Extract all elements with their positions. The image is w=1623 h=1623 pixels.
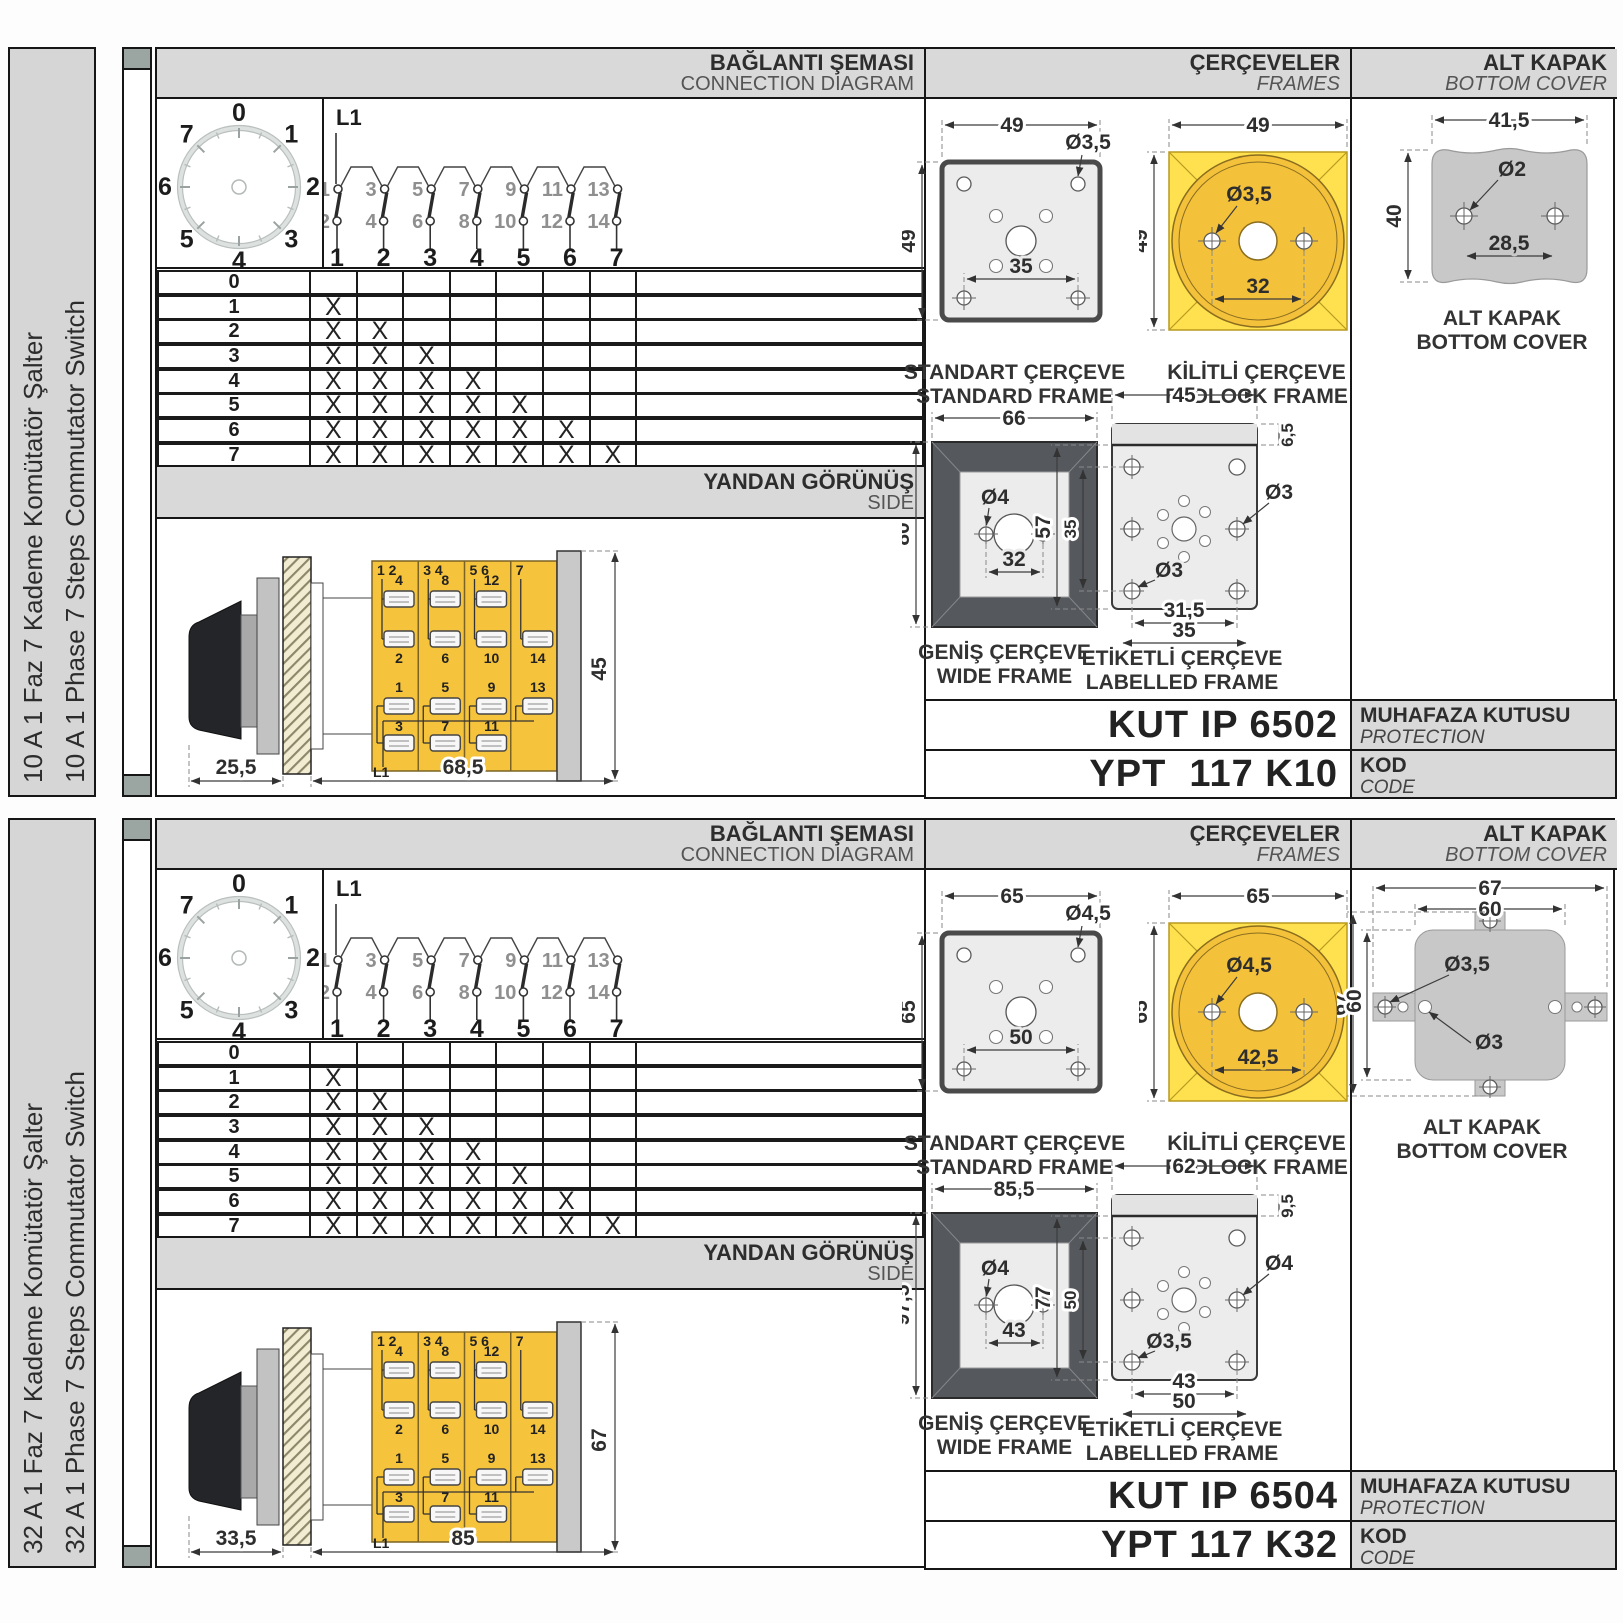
row-label: 0	[159, 1043, 311, 1064]
mounting-panel	[283, 1328, 311, 1545]
code-label-en: CODE	[1360, 1548, 1607, 1569]
step-cell: X	[311, 445, 358, 466]
side-band-tr: YANDAN GÖRÜNÜŞ	[157, 1241, 914, 1264]
top-contact-label: 9	[505, 179, 516, 201]
terminal-label: 14	[530, 1421, 546, 1437]
terminal-label: 8	[441, 1343, 449, 1359]
code-label-cell: KOD CODE	[1350, 749, 1617, 799]
step-cell	[358, 1043, 405, 1064]
pair-label: 7	[516, 1333, 524, 1349]
table-row: 6XXXXXX	[157, 1189, 924, 1214]
step-cell	[544, 1117, 591, 1138]
step-cell: X	[358, 1216, 405, 1237]
dim-front-label: 33,5	[216, 1527, 257, 1550]
step-cell: X	[404, 395, 451, 416]
spacer-plate	[311, 583, 323, 749]
panel-title-turkish: 10 A 1 Faz 7 Kademe Komütatör Şalter	[18, 332, 49, 783]
sidebar-10a: 10 A 1 Faz 7 Kademe Komütatör Şalter 10 …	[8, 47, 96, 797]
header-cover-tr: ALT KAPAK	[1350, 51, 1607, 74]
code-label-cell: KOD CODE	[1350, 1520, 1617, 1570]
step-cell: X	[311, 1191, 358, 1212]
step-cell	[544, 297, 591, 318]
step-number: 5	[516, 244, 530, 267]
labelled-frame-label: ETİKETLİ ÇERÇEVE LABELLED FRAME	[1017, 647, 1347, 695]
row-label: 6	[159, 1191, 311, 1212]
cover-height-label: 40	[1383, 204, 1406, 227]
bottom-contact-label: 8	[459, 982, 470, 1004]
product-code-text: YPT 117 K32	[1101, 1524, 1338, 1567]
step-cell: X	[358, 420, 405, 441]
step-cell: X	[404, 420, 451, 441]
step-cell: X	[404, 1191, 451, 1212]
step-cell: X	[497, 420, 544, 441]
step-cell	[544, 371, 591, 392]
step-cell	[497, 1117, 544, 1138]
bottom-contact-label: 12	[541, 982, 563, 1004]
side-view-band: YANDAN GÖRÜNÜŞ SIDE	[157, 1236, 924, 1290]
row-label: 3	[159, 1117, 311, 1138]
datasheet-page: 10 A 1 Faz 7 Kademe Komütatör Şalter 10 …	[0, 0, 1623, 1623]
header-frames-tr: ÇERÇEVELER	[924, 822, 1340, 845]
labelled-frame-drawing: 45 6,5 Ø3 Ø3	[1017, 379, 1347, 649]
code-label-en: CODE	[1360, 777, 1607, 798]
position-dial: 01234567	[157, 868, 322, 1038]
bottom-contact-label: 2	[324, 982, 330, 1004]
step-cell: X	[311, 371, 358, 392]
step-number: 4	[470, 1015, 484, 1038]
step-cell: X	[497, 1216, 544, 1237]
pair-label: 3 4	[423, 562, 443, 578]
step-cell	[544, 321, 591, 342]
step-cell	[591, 1166, 638, 1187]
product-code-text: YPT 117 K10	[1089, 753, 1338, 796]
step-cell: X	[404, 1142, 451, 1163]
terminal-label: 5	[441, 1450, 449, 1466]
labelled-inner-height-label: 50	[1061, 1291, 1080, 1310]
terminal-label: 1	[395, 679, 403, 695]
terminal-label: 4	[395, 1343, 403, 1359]
padlock-width-label: 65	[1246, 885, 1270, 908]
top-contact-label: 5	[412, 179, 423, 201]
step-cell: X	[311, 420, 358, 441]
step-cell	[358, 1068, 405, 1089]
top-contact-label: 5	[412, 950, 423, 972]
product-code: YPT 117 K10	[924, 749, 1352, 799]
dial-position: 5	[180, 996, 194, 1024]
step-cell	[591, 321, 638, 342]
table-row: 4XXXX	[157, 369, 924, 394]
row-label: 7	[159, 445, 311, 466]
divider-table-top	[157, 267, 926, 269]
std-width-label: 49	[1000, 114, 1023, 137]
step-cell	[497, 1142, 544, 1163]
dial-position: 1	[284, 892, 298, 920]
labelled-width-label: 62	[1172, 1155, 1195, 1178]
terminal-label: 10	[484, 1421, 500, 1437]
std-width-label: 65	[1000, 885, 1024, 908]
enclosure-label-cell: MUHAFAZA KUTUSU PROTECTION ENCLOSURE	[1350, 699, 1617, 751]
labelled-frame-label-tr: ETİKETLİ ÇERÇEVE	[1017, 647, 1347, 671]
pair-label: 3 4	[423, 1333, 443, 1349]
labelled-band-label: 9,5	[1278, 1194, 1297, 1218]
enclosure-label-cell: MUHAFAZA KUTUSU PROTECTION ENCLOSURE	[1350, 1470, 1617, 1522]
bottom-contact-label: 14	[587, 211, 610, 233]
terminal-label: 1	[395, 1450, 403, 1466]
step-cell	[451, 346, 498, 367]
labelled-height-label: 77	[1032, 1286, 1055, 1309]
cover-hole-label: Ø2	[1498, 158, 1526, 181]
header-frames: ÇERÇEVELER FRAMES	[924, 49, 1350, 97]
enclosure-label-tr: MUHAFAZA KUTUSU	[1360, 1475, 1607, 1498]
step-cell: X	[358, 395, 405, 416]
section-header-band: BAĞLANTI ŞEMASI CONNECTION DIAGRAM ÇERÇE…	[157, 820, 1617, 868]
terminal-label: 10	[484, 650, 500, 666]
header-frames-tr: ÇERÇEVELER	[924, 51, 1340, 74]
step-cell	[451, 1043, 498, 1064]
dial-position: 2	[306, 944, 320, 972]
dial-position: 1	[284, 121, 298, 149]
step-number: 3	[423, 1015, 437, 1038]
front-bracket	[257, 578, 279, 754]
spine-square-bottom	[124, 1545, 150, 1566]
step-cell	[497, 297, 544, 318]
top-contact-label: 1	[324, 950, 330, 972]
row-label: 4	[159, 371, 311, 392]
dial-position: 4	[232, 247, 246, 267]
header-cover-tr: ALT KAPAK	[1350, 822, 1607, 845]
table-row: 7XXXXXXX	[157, 443, 924, 468]
row-label: 0	[159, 272, 311, 293]
handle-step	[241, 1386, 257, 1498]
step-cell: X	[544, 445, 591, 466]
step-cell	[404, 297, 451, 318]
side-line-label: L1	[373, 1535, 390, 1551]
header-connection: BAĞLANTI ŞEMASI CONNECTION DIAGRAM	[157, 49, 924, 97]
pair-label: 1 2	[377, 1333, 397, 1349]
std-hole-label: Ø4,5	[1065, 902, 1111, 925]
labelled-frame-label-en: LABELLED FRAME	[1017, 671, 1347, 695]
header-cover: ALT KAPAK BOTTOM COVER	[1350, 49, 1617, 97]
row-label: 5	[159, 395, 311, 416]
step-cell: X	[358, 1117, 405, 1138]
step-cell	[404, 1092, 451, 1113]
side-band-en: SIDE	[157, 1264, 914, 1285]
dial-position: 3	[284, 225, 298, 253]
step-cell	[544, 1068, 591, 1089]
step-cell: X	[311, 395, 358, 416]
step-cell: X	[311, 1166, 358, 1187]
step-cell	[451, 272, 498, 293]
step-cell: X	[311, 321, 358, 342]
spine-square-top	[124, 49, 150, 70]
bottom-cover-label-tr: ALT KAPAK	[1337, 1116, 1623, 1140]
step-cell	[591, 395, 638, 416]
code-label-tr: KOD	[1360, 754, 1607, 777]
header-connection: BAĞLANTI ŞEMASI CONNECTION DIAGRAM	[157, 820, 924, 868]
step-cell	[591, 297, 638, 318]
end-cap	[557, 1322, 581, 1552]
labelled-inner-height-label: 35	[1061, 520, 1080, 539]
step-cell: X	[358, 445, 405, 466]
table-row: 6XXXXXX	[157, 418, 924, 443]
row-label: 7	[159, 1216, 311, 1237]
side-view-drawing: L11 242133 486575 6121091171413 45 25,5 …	[187, 521, 847, 796]
step-cell: X	[404, 1166, 451, 1187]
step-cell: X	[311, 346, 358, 367]
bottom-contact-label: 8	[459, 211, 470, 233]
step-number: 1	[330, 1015, 344, 1038]
step-cell	[591, 371, 638, 392]
enclosure-label-tr: MUHAFAZA KUTUSU	[1360, 704, 1607, 727]
enclosure-code-text: KUT IP 6502	[1108, 704, 1338, 747]
labelled-band-label: 6,5	[1278, 423, 1297, 447]
labelled-frame-label-tr: ETİKETLİ ÇERÇEVE	[1017, 1418, 1347, 1442]
header-connection-tr: BAĞLANTI ŞEMASI	[157, 51, 914, 74]
step-number: 6	[563, 244, 577, 267]
dial-position: 2	[306, 173, 320, 201]
padlock-hole-label: Ø4,5	[1226, 954, 1272, 977]
step-cell	[497, 272, 544, 293]
labelled-frame-label-en: LABELLED FRAME	[1017, 1442, 1347, 1466]
step-cell: X	[358, 321, 405, 342]
step-number: 7	[610, 1015, 624, 1038]
labelled-hole-bottom-label: Ø3,5	[1146, 1330, 1192, 1353]
padlock-pitch-label: 42,5	[1238, 1046, 1279, 1069]
padlock-frame-drawing: 49 Ø3,5 32 49	[1139, 107, 1374, 357]
step-cell	[311, 272, 358, 293]
step-number: 7	[610, 244, 624, 267]
bottom-contact-label: 10	[494, 211, 516, 233]
dial-position: 3	[284, 996, 298, 1024]
wide-height-label: 80	[902, 522, 914, 545]
table-row: 4XXXX	[157, 1140, 924, 1165]
step-cell	[404, 1043, 451, 1064]
bottom-contact-label: 10	[494, 982, 516, 1004]
step-number: 6	[563, 1015, 577, 1038]
step-cell	[358, 272, 405, 293]
position-dial: 01234567	[157, 97, 322, 267]
step-cell: X	[451, 371, 498, 392]
step-cell: X	[311, 1117, 358, 1138]
step-cell	[544, 272, 591, 293]
step-cell	[451, 1068, 498, 1089]
line-label: L1	[336, 105, 362, 130]
table-row: 0	[157, 1041, 924, 1066]
cover-body-hole-label: Ø3	[1475, 1031, 1503, 1054]
enclosure-code-text: KUT IP 6504	[1108, 1475, 1338, 1518]
step-cell: X	[358, 1191, 405, 1212]
pair-label: 1 2	[377, 562, 397, 578]
step-cell: X	[311, 1068, 358, 1089]
row-label: 1	[159, 297, 311, 318]
terminal-label: 12	[484, 572, 500, 588]
std-hole-label: Ø3,5	[1065, 131, 1111, 154]
terminal-label: 11	[484, 1489, 499, 1505]
cover-inner-height-label: 60	[1343, 989, 1366, 1012]
terminal-label: 12	[484, 1343, 500, 1359]
step-cell: X	[358, 1092, 405, 1113]
wide-hole-label: Ø4	[981, 1257, 1009, 1280]
code-label-tr: KOD	[1360, 1525, 1607, 1548]
panel-main-10a: BAĞLANTI ŞEMASI CONNECTION DIAGRAM ÇERÇE…	[155, 47, 1615, 797]
padlock-width-label: 49	[1246, 114, 1269, 137]
shaft-housing	[323, 1369, 372, 1505]
step-cell	[497, 321, 544, 342]
cover-tab-hole-label: Ø3,5	[1444, 953, 1490, 976]
front-bracket	[257, 1349, 279, 1525]
table-row: 2XX	[157, 1090, 924, 1115]
bottom-contact-label: 4	[365, 982, 377, 1004]
step-number: 2	[377, 1015, 391, 1038]
dial-position: 6	[158, 944, 172, 972]
step-cell	[451, 1117, 498, 1138]
bottom-cover-label-en: BOTTOM COVER	[1382, 331, 1622, 355]
bottom-cover-label-tr: ALT KAPAK	[1382, 307, 1622, 331]
step-cell: X	[591, 445, 638, 466]
top-contact-label: 7	[459, 950, 470, 972]
header-connection-tr: BAĞLANTI ŞEMASI	[157, 822, 914, 845]
side-view-drawing: L11 242133 486575 6121091171413 67 33,5 …	[187, 1292, 847, 1567]
standard-frame-drawing: 65 Ø4,5 50 65	[902, 878, 1127, 1128]
end-cap	[557, 551, 581, 781]
spacer-plate	[311, 1354, 323, 1520]
labelled-hole-top-label: Ø3	[1265, 481, 1293, 504]
step-cell	[544, 1043, 591, 1064]
bottom-cover-drawing: 67 60 67 60 Ø3,5 Ø3	[1337, 875, 1623, 1115]
table-row: 1X	[157, 1066, 924, 1091]
panel-title-english: 10 A 1 Phase 7 Steps Commutator Switch	[60, 300, 91, 783]
row-label: 3	[159, 346, 311, 367]
table-row: 3XXX	[157, 1115, 924, 1140]
step-cell	[591, 1068, 638, 1089]
step-cell	[404, 321, 451, 342]
header-cover: ALT KAPAK BOTTOM COVER	[1350, 820, 1617, 868]
mounting-panel	[283, 557, 311, 774]
panel-title-english: 32 A 1 Phase 7 Steps Commutator Switch	[60, 1071, 91, 1554]
table-row: 2XX	[157, 319, 924, 344]
padlock-hole-label: Ø3,5	[1226, 183, 1272, 206]
dim-height-label: 45	[588, 657, 611, 681]
labelled-pitch-outer-label: 35	[1172, 619, 1196, 642]
top-contact-label: 11	[542, 950, 563, 972]
binder-spine	[122, 818, 152, 1568]
step-cell: X	[311, 1142, 358, 1163]
side-band-tr: YANDAN GÖRÜNÜŞ	[157, 470, 914, 493]
std-pitch-label: 50	[1009, 1026, 1032, 1049]
step-cell	[451, 297, 498, 318]
step-cell	[497, 346, 544, 367]
terminal-label: 3	[395, 718, 403, 734]
handle-step	[241, 615, 257, 727]
std-height-label: 65	[902, 1000, 920, 1024]
table-row: 1X	[157, 295, 924, 320]
connection-diagram: L112134256378491051112613147	[324, 97, 924, 267]
dial-position: 0	[232, 870, 246, 898]
cover-pitch-label: 28,5	[1489, 232, 1530, 255]
dial-position: 0	[232, 99, 246, 127]
top-contact-label: 7	[459, 179, 470, 201]
labelled-hole-top-label: Ø4	[1265, 1252, 1293, 1275]
row-label: 4	[159, 1142, 311, 1163]
steps-table: 01X2XX3XXX4XXXX5XXXXX6XXXXXX7XXXXXXX	[157, 270, 924, 468]
terminal-label: 3	[395, 1489, 403, 1505]
bottom-cover-body	[1415, 930, 1565, 1080]
step-cell: X	[451, 420, 498, 441]
step-cell: X	[451, 1166, 498, 1187]
row-label: 6	[159, 420, 311, 441]
std-pitch-label: 35	[1009, 255, 1033, 278]
step-cell: X	[404, 1216, 451, 1237]
step-number: 2	[377, 244, 391, 267]
step-cell	[591, 420, 638, 441]
table-row: 7XXXXXXX	[157, 1214, 924, 1239]
step-cell	[404, 272, 451, 293]
table-row: 0	[157, 270, 924, 295]
cover-outer-width-label: 67	[1478, 877, 1501, 900]
step-number: 3	[423, 244, 437, 267]
line-label: L1	[336, 876, 362, 901]
cover-inner-width-label: 60	[1478, 898, 1501, 921]
bottom-cover-label: ALT KAPAK BOTTOM COVER	[1337, 1116, 1623, 1164]
spine-square-bottom	[124, 774, 150, 795]
switch-handle	[189, 1372, 241, 1510]
step-cell: X	[451, 445, 498, 466]
table-row: 3XXX	[157, 344, 924, 369]
terminal-label: 8	[441, 572, 449, 588]
labelled-frame-label: ETİKETLİ ÇERÇEVE LABELLED FRAME	[1017, 1418, 1347, 1466]
terminal-label: 14	[530, 650, 546, 666]
step-cell: X	[358, 1166, 405, 1187]
bottom-contact-label: 6	[412, 982, 423, 1004]
product-code: YPT 117 K32	[924, 1520, 1352, 1570]
dial-position: 4	[232, 1018, 246, 1038]
labelled-frame-drawing: 62 9,5 Ø4 Ø3,5	[1017, 1150, 1347, 1420]
side-line-label: L1	[373, 764, 390, 780]
row-label: 2	[159, 321, 311, 342]
dim-body-label: 85	[451, 1527, 475, 1550]
connection-diagram: L112134256378491051112613147	[324, 868, 924, 1038]
terminal-label: 4	[395, 572, 403, 588]
padlock-height-label: 65	[1139, 1000, 1152, 1024]
step-cell	[497, 1043, 544, 1064]
header-connection-en: CONNECTION DIAGRAM	[157, 845, 914, 866]
std-height-label: 49	[902, 229, 920, 252]
step-cell: X	[497, 395, 544, 416]
step-number: 5	[516, 1015, 530, 1038]
enclosure-code: KUT IP 6502	[924, 699, 1352, 751]
terminal-label: 6	[441, 650, 449, 666]
step-cell: X	[311, 1092, 358, 1113]
step-cell	[544, 395, 591, 416]
step-cell: X	[451, 1142, 498, 1163]
step-number: 4	[470, 244, 484, 267]
step-cell	[451, 321, 498, 342]
divider-table-top	[157, 1038, 926, 1040]
section-header-band: BAĞLANTI ŞEMASI CONNECTION DIAGRAM ÇERÇE…	[157, 49, 1617, 97]
step-cell	[544, 1166, 591, 1187]
terminal-label: 11	[484, 718, 499, 734]
terminal-label: 9	[488, 679, 496, 695]
step-cell	[544, 1142, 591, 1163]
table-row: 5XXXXX	[157, 1164, 924, 1189]
dial-position: 7	[180, 892, 194, 920]
side-view-band: YANDAN GÖRÜNÜŞ SIDE	[157, 465, 924, 519]
step-cell: X	[544, 420, 591, 441]
header-frames-en: FRAMES	[924, 845, 1340, 866]
step-cell: X	[451, 1216, 498, 1237]
header-connection-en: CONNECTION DIAGRAM	[157, 74, 914, 95]
binder-spine	[122, 47, 152, 797]
